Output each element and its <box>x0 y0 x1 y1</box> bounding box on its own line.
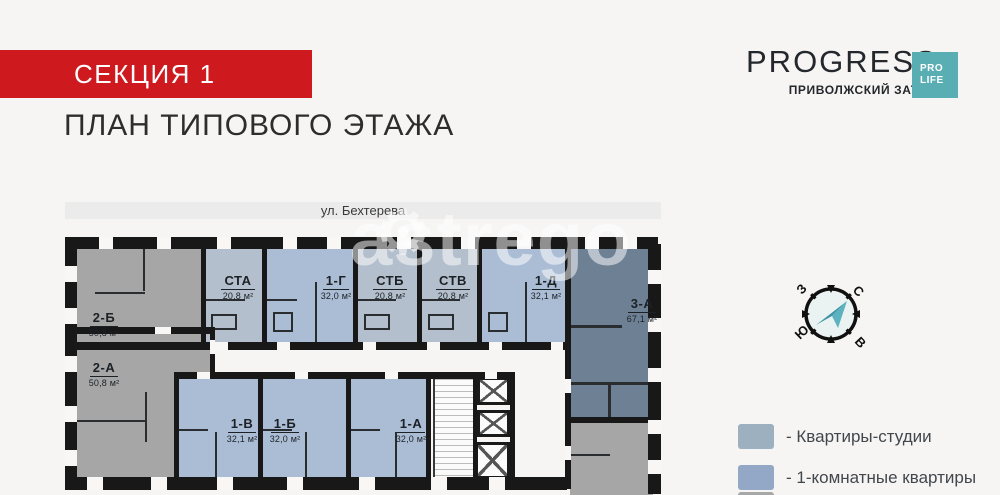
partition <box>77 420 145 422</box>
partition <box>350 429 380 431</box>
window <box>283 237 297 249</box>
legend-label-one-room: - 1-комнатные квартиры <box>786 468 976 488</box>
window <box>217 477 233 490</box>
brand-badge-line1: PRO <box>920 63 958 75</box>
bathroom <box>364 314 390 330</box>
apartment-area: 50,8 м² <box>72 328 136 338</box>
apartment-name: 1-Б <box>271 416 299 433</box>
unit-divider <box>174 374 179 477</box>
section-banner: СЕКЦИЯ 1 <box>0 50 312 98</box>
apartment-name: 1-В <box>228 416 256 433</box>
partition <box>608 385 611 421</box>
apartment-label-2b: 2-Б 50,8 м² <box>72 309 136 338</box>
door <box>210 340 215 354</box>
apartment-name: СТВ <box>436 273 470 290</box>
elevator-shaft <box>477 377 510 405</box>
section-title: СЕКЦИЯ 1 <box>0 50 312 98</box>
window <box>87 477 103 490</box>
door <box>277 342 290 350</box>
window <box>623 237 637 249</box>
apartment-area: 50,8 м² <box>72 378 136 388</box>
partition <box>95 292 145 294</box>
door <box>565 379 571 393</box>
partition <box>145 392 147 442</box>
legend-item-studio: - Квартиры-студии <box>738 424 932 449</box>
window <box>648 460 661 474</box>
apartment-label-stb: СТБ 20,8 м² <box>358 272 422 301</box>
unit-2a-lower <box>77 374 178 477</box>
partition <box>178 429 208 431</box>
door <box>485 372 497 379</box>
window <box>461 237 475 249</box>
apartment-name: 2-Б <box>90 310 118 327</box>
partition <box>570 325 622 328</box>
page-title: ПЛАН ТИПОВОГО ЭТАЖА <box>64 109 454 143</box>
window <box>489 477 505 490</box>
legend-item-one-room: - 1-комнатные квартиры <box>738 465 976 490</box>
apartment-area: 32,1 м² <box>514 291 578 301</box>
door <box>215 342 228 350</box>
corridor-wall-bottom <box>174 372 515 379</box>
window <box>99 237 113 249</box>
brand-tagline: ПРИВОЛЖСКИЙ ЗАТОН <box>746 83 938 97</box>
apartment-name: 1-Г <box>323 273 349 290</box>
window <box>327 237 341 249</box>
door <box>489 342 502 350</box>
partition <box>570 454 610 456</box>
floor-plan: 2-Б 50,8 м² 2-А 50,8 м² СТА 20,8 м² 1-Г … <box>65 224 661 495</box>
apartment-area: 67,1 м² <box>610 314 674 324</box>
window <box>65 266 77 282</box>
door <box>385 372 398 379</box>
floor-plan-page: СЕКЦИЯ 1 ПЛАН ТИПОВОГО ЭТАЖА PROGRESS ПР… <box>0 0 1000 495</box>
brand-badge-line2: LIFE <box>920 75 958 87</box>
unit-3a <box>570 244 653 421</box>
apartment-area: 20,8 м² <box>421 291 485 301</box>
apartment-label-1d: 1-Д 32,1 м² <box>514 272 578 301</box>
window <box>151 477 167 490</box>
apartment-label-1a: 1-А 32,0 м² <box>379 415 443 444</box>
compass-north: С <box>850 282 868 300</box>
apartment-name: 1-Д <box>532 273 560 290</box>
apartment-label-stv: СТВ 20,8 м² <box>421 272 485 301</box>
legend-swatch-one-room <box>738 465 774 490</box>
apartment-label-3a: 3-А 67,1 м² <box>610 295 674 324</box>
window <box>431 477 447 490</box>
partition <box>267 299 297 301</box>
brand-name: PROGRESS <box>746 44 938 80</box>
window <box>517 237 531 249</box>
apartment-area: 32,0 м² <box>379 434 443 444</box>
door <box>295 372 308 379</box>
legend-swatch-studio <box>738 424 774 449</box>
unit-divider <box>510 374 515 479</box>
unit-divider <box>473 374 477 479</box>
window <box>287 477 303 490</box>
apartment-name: 3-А <box>628 296 656 313</box>
apartment-label-2a: 2-А 50,8 м² <box>72 359 136 388</box>
brand-logo: PROGRESS ПРИВОЛЖСКИЙ ЗАТОН <box>746 44 938 97</box>
compass-west: З <box>793 281 810 297</box>
legend-label-studio: - Квартиры-студии <box>786 427 932 447</box>
window <box>648 270 661 284</box>
apartment-label-1b: 1-Б 32,0 м² <box>253 415 317 444</box>
street-label-bar: ул. Бехтерева <box>65 202 661 219</box>
bathroom <box>273 312 293 332</box>
partition <box>143 249 145 291</box>
bathroom <box>428 314 454 330</box>
street-label: ул. Бехтерева <box>321 203 405 218</box>
compass: З С Ю В <box>793 276 869 352</box>
apartment-label-sta: СТА 20,8 м² <box>206 272 270 301</box>
apartment-name: СТА <box>221 273 254 290</box>
door <box>197 372 210 379</box>
apartment-area: 20,8 м² <box>358 291 422 301</box>
apartment-area: 20,8 м² <box>206 291 270 301</box>
door <box>363 342 376 350</box>
window <box>585 237 599 249</box>
door <box>155 327 171 334</box>
window <box>648 420 661 434</box>
window <box>359 477 375 490</box>
door <box>551 342 563 350</box>
apartment-name: СТБ <box>373 273 407 290</box>
brand-badge: PRO LIFE <box>912 52 958 98</box>
apartment-area: 32,0 м² <box>253 434 317 444</box>
unit-right-gray <box>570 421 653 495</box>
door <box>427 342 440 350</box>
apartment-name: 2-А <box>90 360 118 377</box>
bathroom <box>488 312 508 332</box>
door <box>565 446 571 460</box>
elevator-shaft <box>477 410 510 437</box>
window <box>397 237 411 249</box>
window <box>217 237 231 249</box>
apartment-name: 1-А <box>397 416 425 433</box>
window <box>157 237 171 249</box>
window <box>648 368 661 382</box>
window <box>65 406 77 422</box>
wall-3a-bottom <box>570 417 650 423</box>
floor-plan-geometry <box>65 224 661 495</box>
window <box>65 450 77 466</box>
unit-divider <box>346 374 351 477</box>
elevator-shaft <box>475 442 510 479</box>
compass-east: В <box>852 334 869 351</box>
